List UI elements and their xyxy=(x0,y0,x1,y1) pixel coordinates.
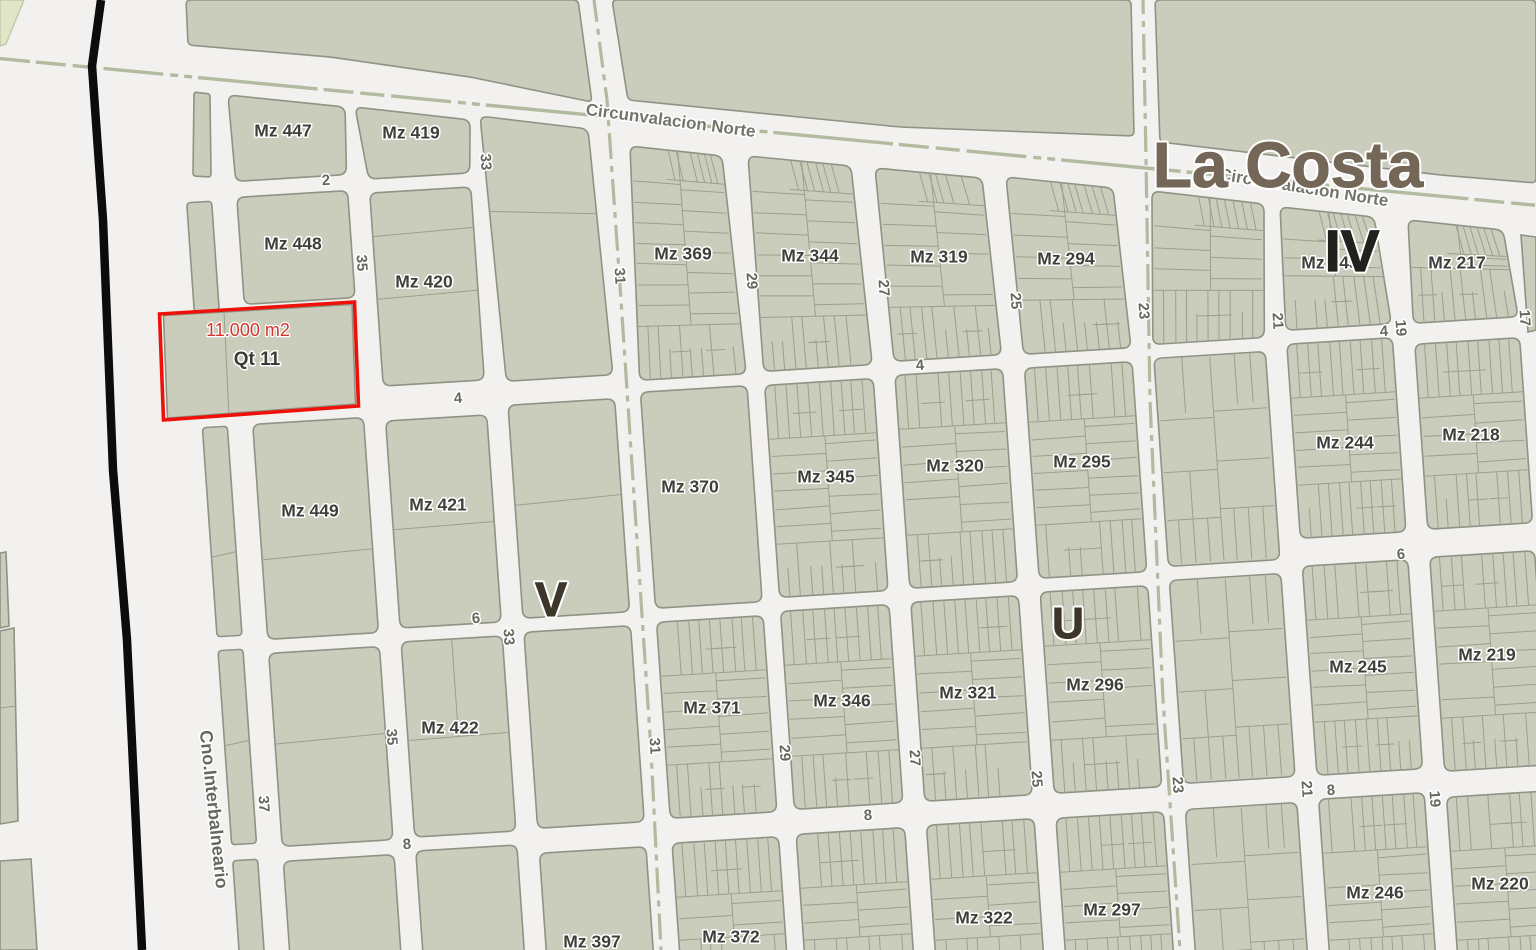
svg-text:Mz 369: Mz 369 xyxy=(654,244,712,264)
svg-text:Mz 319: Mz 319 xyxy=(910,247,968,267)
svg-text:11.000 m2: 11.000 m2 xyxy=(206,320,290,340)
svg-text:Mz 217: Mz 217 xyxy=(1428,253,1485,273)
svg-text:IV: IV xyxy=(1325,219,1380,284)
svg-text:31: 31 xyxy=(610,267,628,285)
svg-text:21: 21 xyxy=(1268,312,1286,330)
svg-text:Mz 321: Mz 321 xyxy=(939,683,997,703)
svg-text:23: 23 xyxy=(1134,302,1152,320)
svg-text:19: 19 xyxy=(1425,790,1443,808)
svg-text:U: U xyxy=(1052,599,1084,648)
svg-text:Mz 297: Mz 297 xyxy=(1083,900,1140,920)
svg-text:Mz 447: Mz 447 xyxy=(254,121,311,141)
svg-text:17: 17 xyxy=(1515,309,1533,327)
svg-text:27: 27 xyxy=(874,279,892,297)
svg-text:37: 37 xyxy=(254,795,272,813)
svg-text:6: 6 xyxy=(471,610,481,628)
svg-text:6: 6 xyxy=(1396,546,1406,564)
svg-text:33: 33 xyxy=(476,153,494,171)
svg-text:8: 8 xyxy=(863,807,873,825)
svg-text:Mz 420: Mz 420 xyxy=(395,272,453,292)
svg-text:Mz 419: Mz 419 xyxy=(382,123,440,143)
svg-text:Mz 372: Mz 372 xyxy=(702,927,760,947)
svg-text:8: 8 xyxy=(402,836,412,854)
svg-text:Mz 244: Mz 244 xyxy=(1316,433,1374,453)
svg-text:Mz 449: Mz 449 xyxy=(281,501,339,521)
svg-text:27: 27 xyxy=(905,749,923,767)
svg-text:Mz 322: Mz 322 xyxy=(955,908,1013,928)
svg-text:31: 31 xyxy=(645,737,663,755)
svg-text:Qt 11: Qt 11 xyxy=(234,349,281,370)
svg-text:33: 33 xyxy=(499,628,517,646)
svg-text:La Costa: La Costa xyxy=(1153,129,1424,201)
svg-text:29: 29 xyxy=(742,272,760,290)
svg-text:8: 8 xyxy=(1326,782,1336,800)
svg-text:Mz 448: Mz 448 xyxy=(264,234,322,254)
svg-text:Mz 320: Mz 320 xyxy=(926,456,984,476)
svg-text:Mz 346: Mz 346 xyxy=(813,691,871,711)
svg-text:2: 2 xyxy=(321,172,331,190)
svg-text:35: 35 xyxy=(382,728,400,746)
svg-text:V: V xyxy=(535,574,567,627)
svg-text:Mz 345: Mz 345 xyxy=(797,467,855,487)
svg-text:35: 35 xyxy=(352,254,370,272)
svg-text:Mz 294: Mz 294 xyxy=(1037,249,1095,269)
svg-text:21: 21 xyxy=(1297,780,1315,798)
svg-text:Mz 371: Mz 371 xyxy=(683,698,741,718)
svg-text:29: 29 xyxy=(775,744,793,762)
svg-text:Mz 344: Mz 344 xyxy=(781,246,839,266)
svg-text:Mz 422: Mz 422 xyxy=(421,718,479,738)
svg-text:Mz 246: Mz 246 xyxy=(1346,883,1404,903)
svg-text:Mz 397: Mz 397 xyxy=(563,932,620,950)
svg-text:Mz 296: Mz 296 xyxy=(1066,675,1124,695)
svg-text:Mz 219: Mz 219 xyxy=(1458,645,1516,665)
svg-text:19: 19 xyxy=(1391,319,1409,337)
svg-text:Mz 218: Mz 218 xyxy=(1442,425,1500,445)
svg-text:Mz 370: Mz 370 xyxy=(661,477,719,497)
svg-text:Mz 245: Mz 245 xyxy=(1329,657,1387,677)
svg-text:25: 25 xyxy=(1006,292,1024,310)
svg-text:23: 23 xyxy=(1168,776,1186,794)
svg-text:Mz 421: Mz 421 xyxy=(409,495,467,515)
svg-text:Mz 295: Mz 295 xyxy=(1053,452,1111,472)
svg-text:25: 25 xyxy=(1027,770,1045,788)
svg-text:Mz 220: Mz 220 xyxy=(1471,874,1529,894)
